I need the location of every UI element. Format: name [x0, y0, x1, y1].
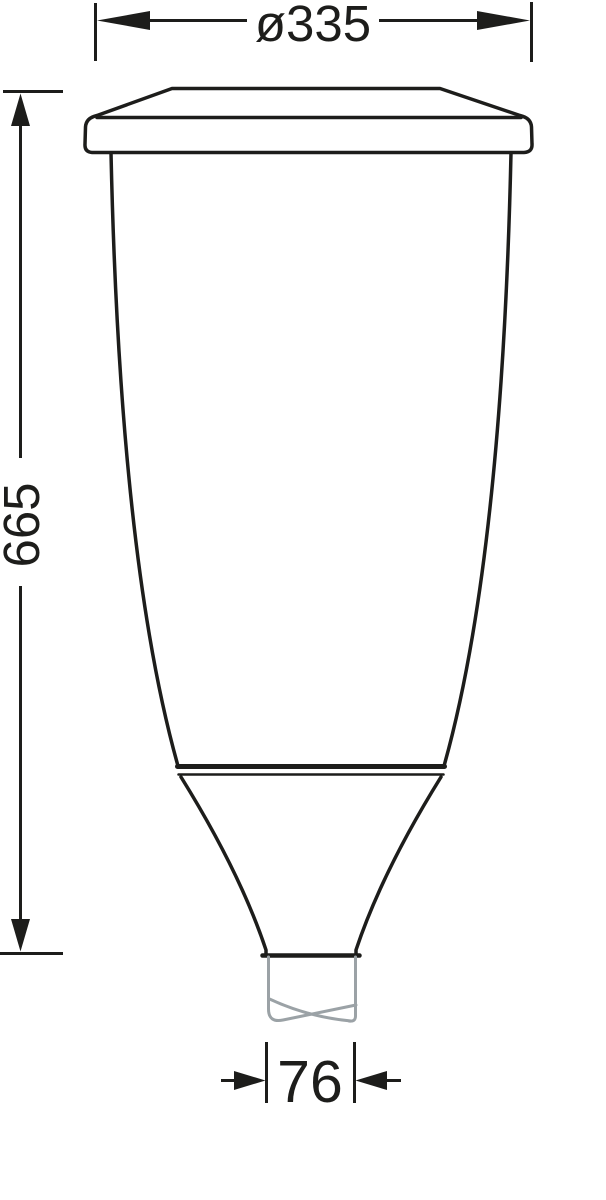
- pole-break: [269, 957, 357, 1021]
- arrowhead-down-icon: [11, 919, 30, 952]
- arrowhead-left-icon: [97, 11, 150, 30]
- dimension-overall-height: 665: [0, 92, 63, 954]
- arrowhead-right-icon: [234, 1071, 266, 1090]
- technical-drawing: ø335 665: [0, 0, 606, 1200]
- body-left-edge: [111, 153, 178, 766]
- dimension-top-diameter: ø335: [96, 0, 532, 62]
- dimension-label-spigot-width: 76: [277, 1049, 343, 1115]
- pole-right-edge: [349, 957, 356, 1021]
- drawing-canvas: ø335 665: [0, 0, 606, 1200]
- dimension-label-top-diameter: ø335: [255, 0, 371, 52]
- canopy-outline: [85, 89, 532, 153]
- funnel-right-edge: [356, 777, 441, 954]
- dimension-label-overall-height: 665: [0, 482, 50, 567]
- arrowhead-left-icon: [356, 1071, 388, 1090]
- luminaire-outline: [85, 89, 532, 956]
- arrowhead-up-icon: [11, 94, 30, 127]
- pole-left-edge-with-break: [269, 957, 357, 1021]
- funnel-left-edge: [181, 777, 266, 954]
- arrowhead-right-icon: [477, 11, 530, 30]
- body-right-edge: [444, 153, 511, 766]
- dimension-spigot-width: 76: [221, 1042, 401, 1115]
